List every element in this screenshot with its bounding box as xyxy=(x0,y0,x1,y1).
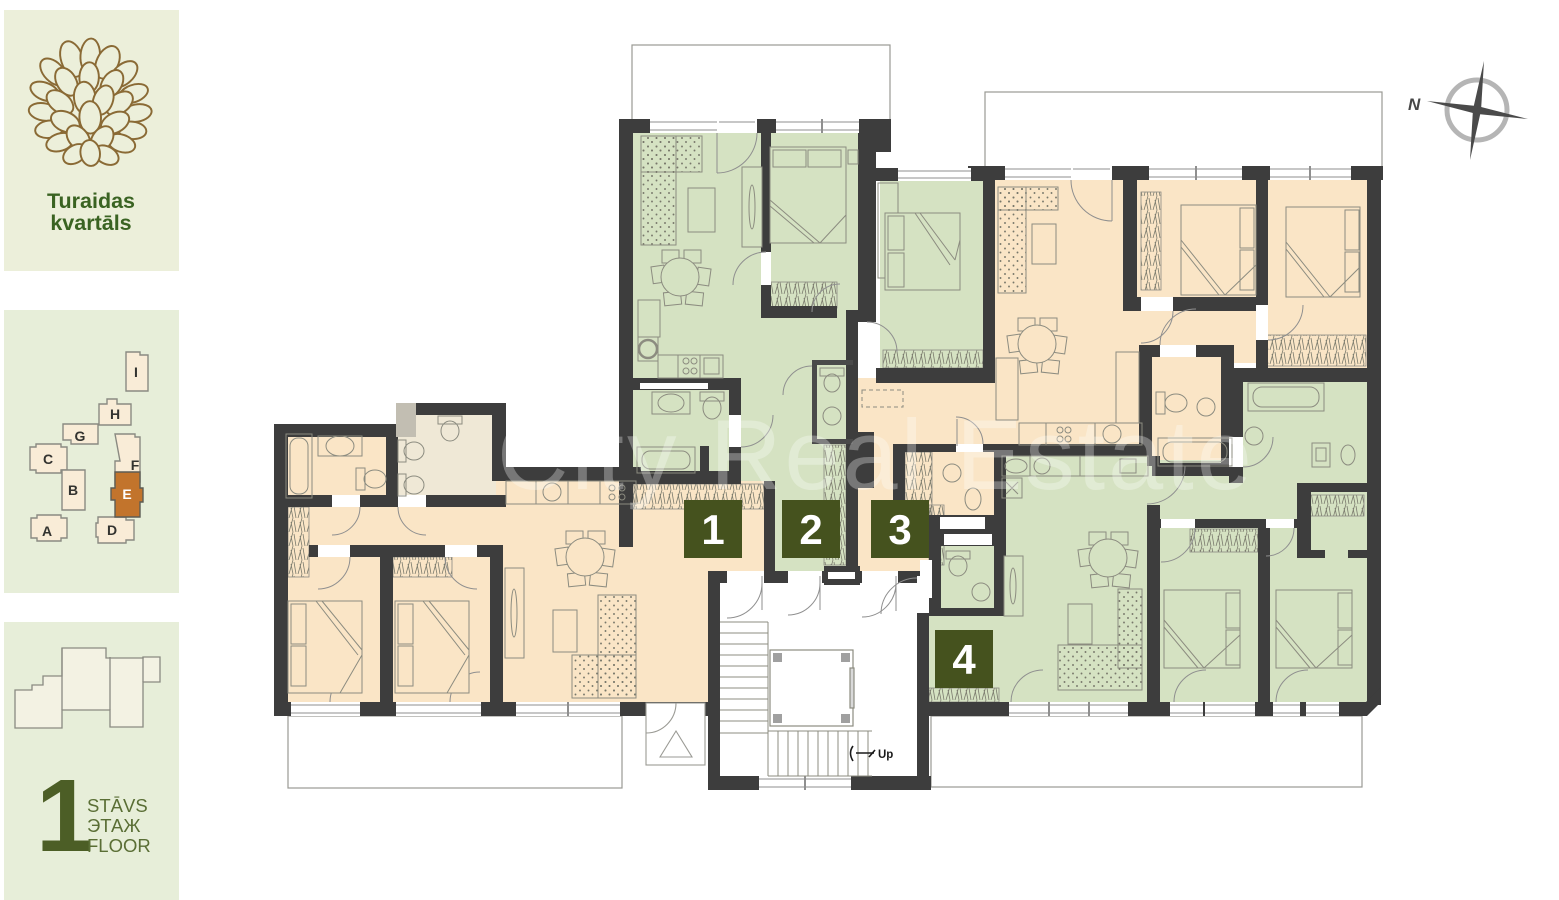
svg-text:STĀVS: STĀVS xyxy=(87,795,148,816)
svg-text:Up: Up xyxy=(878,749,893,761)
svg-text:FLOOR: FLOOR xyxy=(87,835,151,856)
svg-text:A: A xyxy=(42,523,52,539)
svg-text:City Real Estate: City Real Estate xyxy=(497,399,1255,510)
svg-text:1: 1 xyxy=(701,506,724,553)
svg-text:3: 3 xyxy=(888,506,911,553)
svg-text:ЭТАЖ: ЭТАЖ xyxy=(87,815,140,836)
svg-text:I: I xyxy=(134,364,138,380)
svg-text:1: 1 xyxy=(36,758,93,873)
svg-text:B: B xyxy=(68,482,78,498)
svg-text:2: 2 xyxy=(799,506,822,553)
svg-text:kvartāls: kvartāls xyxy=(50,211,131,235)
svg-text:N: N xyxy=(1408,95,1421,114)
svg-text:E: E xyxy=(122,486,131,502)
svg-text:G: G xyxy=(75,428,86,444)
svg-text:4: 4 xyxy=(952,636,976,683)
svg-text:F: F xyxy=(131,457,140,473)
svg-text:Turaidas: Turaidas xyxy=(47,189,135,213)
svg-text:C: C xyxy=(43,451,53,467)
svg-text:H: H xyxy=(110,406,120,422)
svg-text:D: D xyxy=(107,522,117,538)
